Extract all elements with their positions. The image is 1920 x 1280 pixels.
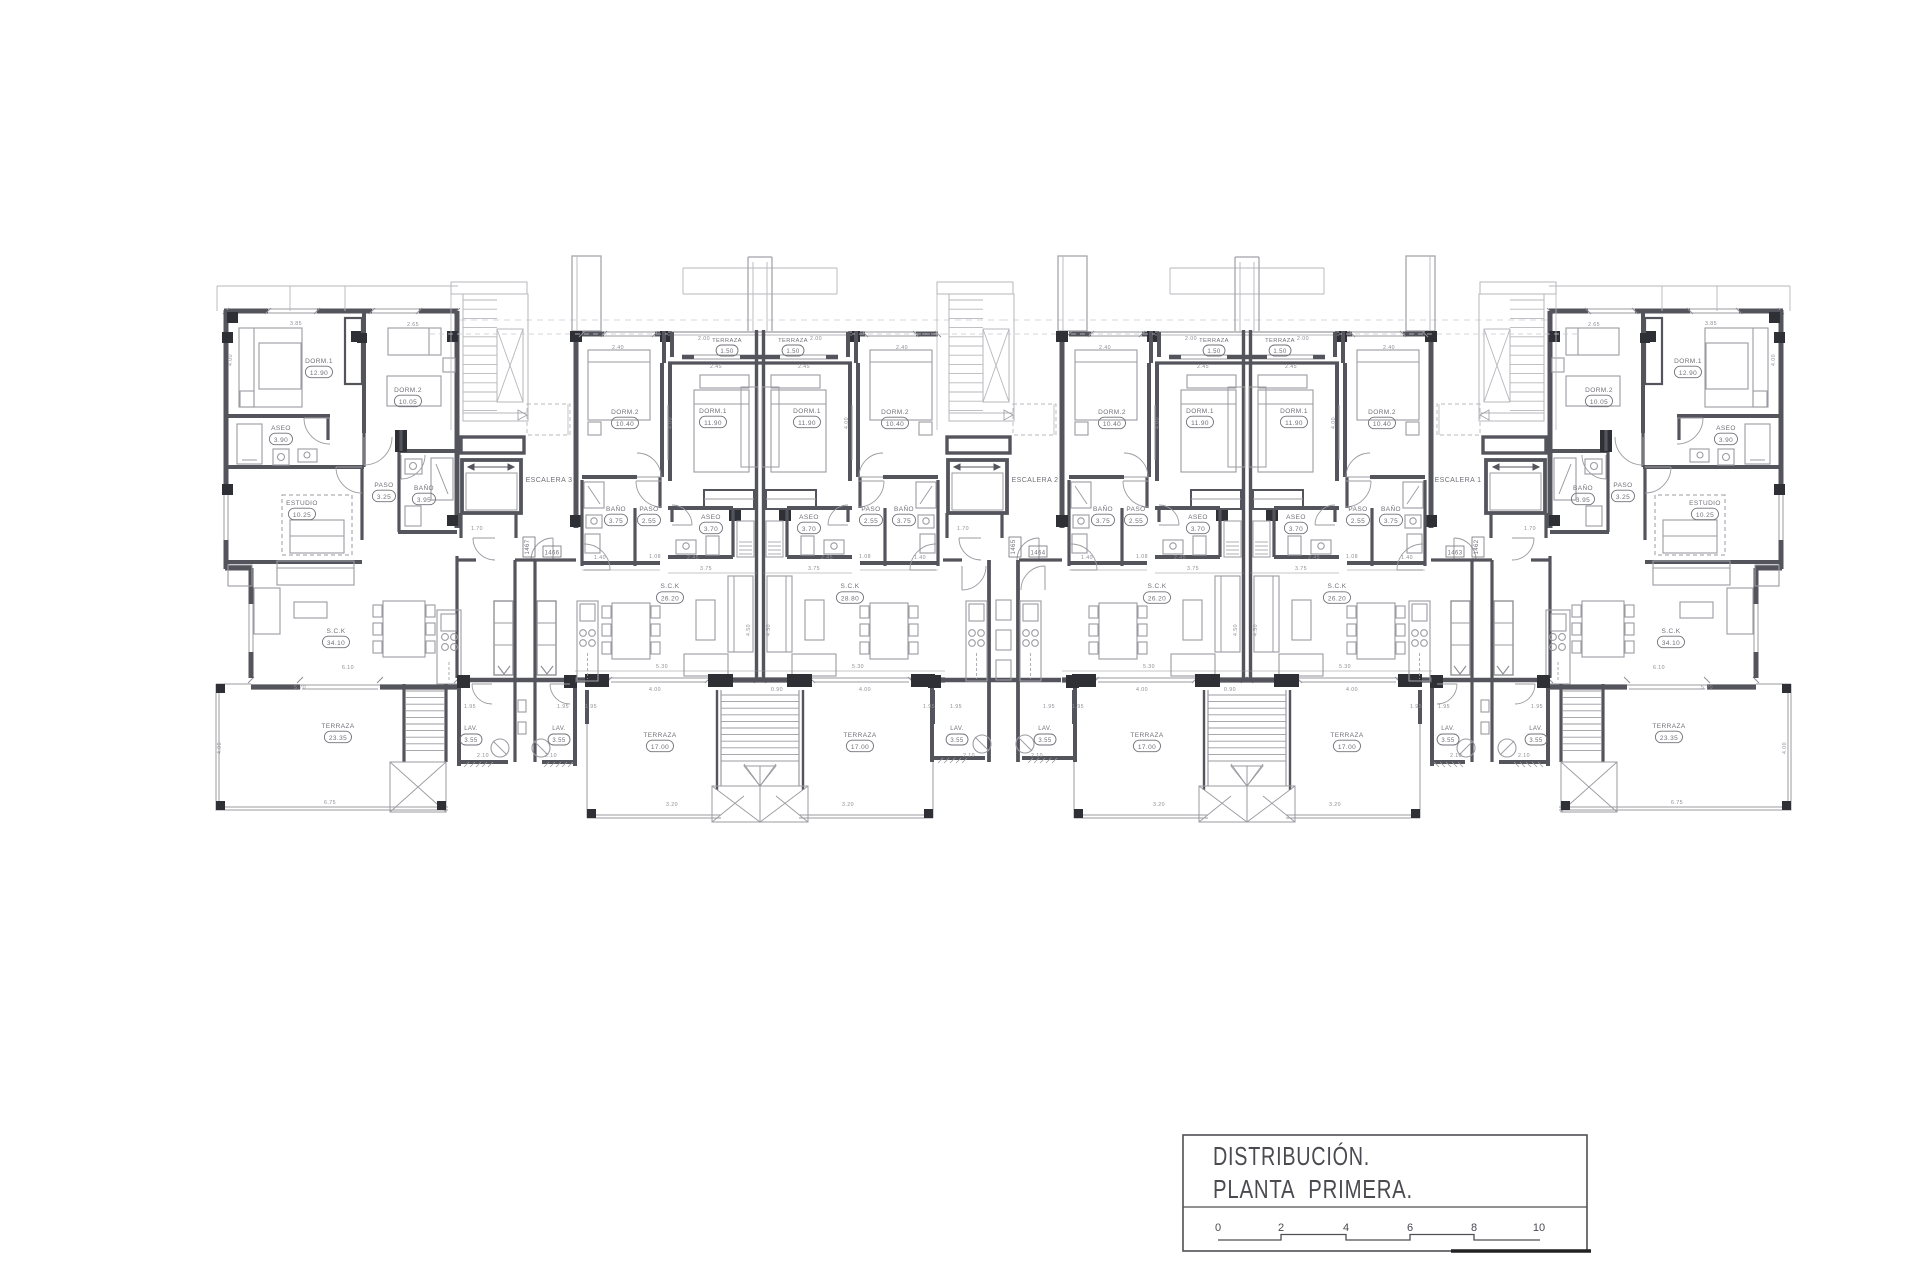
svg-text:3.20: 3.20 [666, 802, 678, 808]
svg-text:DORM.1: DORM.1 [1186, 408, 1214, 415]
svg-text:3.20: 3.20 [842, 802, 854, 808]
svg-text:S.C.K: S.C.K [1148, 583, 1167, 590]
svg-text:LAV.: LAV. [950, 726, 964, 732]
svg-text:DORM.1: DORM.1 [1280, 408, 1308, 415]
svg-text:3.95: 3.95 [417, 497, 431, 504]
svg-text:DORM.2: DORM.2 [394, 387, 422, 394]
svg-text:TERRAZA: TERRAZA [712, 338, 742, 344]
svg-text:S.C.K: S.C.K [327, 628, 346, 635]
svg-text:10.05: 10.05 [1590, 399, 1608, 406]
svg-text:2.40: 2.40 [1099, 345, 1111, 351]
svg-text:3.75: 3.75 [1295, 566, 1307, 572]
svg-text:2.45: 2.45 [821, 555, 833, 561]
svg-text:TERRAZA: TERRAZA [1652, 723, 1685, 730]
svg-text:1.70: 1.70 [471, 526, 483, 532]
svg-text:ESTUDIO: ESTUDIO [1689, 500, 1721, 507]
svg-text:ESTUDIO: ESTUDIO [286, 500, 318, 507]
svg-text:2.10: 2.10 [545, 753, 557, 759]
svg-text:11.90: 11.90 [1285, 420, 1303, 427]
svg-text:LAV.: LAV. [464, 726, 478, 732]
svg-text:ESCALERA 1: ESCALERA 1 [1435, 477, 1482, 484]
svg-text:1463: 1463 [1448, 551, 1463, 557]
svg-text:BAÑO: BAÑO [894, 504, 914, 513]
svg-text:1.95: 1.95 [585, 704, 597, 710]
svg-text:3.55: 3.55 [1038, 738, 1052, 744]
svg-text:2.55: 2.55 [1129, 518, 1143, 525]
svg-text:1.08: 1.08 [1136, 554, 1148, 560]
svg-text:3.20: 3.20 [1329, 802, 1341, 808]
svg-text:2: 2 [1278, 1222, 1284, 1234]
svg-text:17.00: 17.00 [651, 744, 669, 751]
svg-text:ASEO: ASEO [271, 425, 291, 432]
svg-text:BAÑO: BAÑO [1381, 504, 1401, 513]
svg-text:PASO: PASO [374, 482, 393, 489]
svg-text:TERRAZA: TERRAZA [321, 723, 354, 730]
svg-text:2.00: 2.00 [810, 336, 822, 342]
svg-text:3.90: 3.90 [274, 437, 288, 444]
svg-text:4.00: 4.00 [1782, 742, 1788, 754]
svg-text:ASEO: ASEO [799, 514, 819, 521]
svg-text:10.40: 10.40 [1373, 421, 1391, 428]
svg-text:LAV.: LAV. [1529, 726, 1543, 732]
svg-text:26.20: 26.20 [661, 595, 679, 602]
svg-text:2.00: 2.00 [1185, 336, 1197, 342]
svg-text:1.95: 1.95 [464, 704, 476, 710]
svg-text:3.70: 3.70 [1289, 526, 1303, 533]
svg-text:3.75: 3.75 [700, 566, 712, 572]
svg-text:TERRAZA: TERRAZA [1130, 732, 1163, 739]
svg-text:1467: 1467 [525, 539, 531, 554]
svg-text:ESCALERA 2: ESCALERA 2 [1012, 477, 1059, 484]
svg-text:10.25: 10.25 [293, 512, 311, 519]
svg-text:6.10: 6.10 [342, 665, 354, 671]
svg-text:26.20: 26.20 [1148, 595, 1166, 602]
svg-text:4.50: 4.50 [1253, 624, 1259, 636]
svg-text:2.10: 2.10 [1518, 753, 1530, 759]
svg-text:TERRAZA: TERRAZA [843, 732, 876, 739]
svg-text:2.10: 2.10 [1031, 753, 1043, 759]
svg-text:3.75: 3.75 [1096, 518, 1110, 525]
svg-text:2.45: 2.45 [1174, 555, 1186, 561]
svg-text:2.55: 2.55 [864, 518, 878, 525]
svg-text:11.90: 11.90 [704, 420, 722, 427]
svg-text:3.70: 3.70 [802, 526, 816, 533]
svg-text:0.90: 0.90 [1224, 687, 1236, 693]
svg-text:3.55: 3.55 [464, 738, 478, 744]
svg-text:ASEO: ASEO [1188, 514, 1208, 521]
svg-text:2.55: 2.55 [642, 518, 656, 525]
svg-text:0: 0 [1215, 1222, 1221, 1234]
svg-text:DORM.1: DORM.1 [305, 358, 333, 365]
svg-text:1.08: 1.08 [1346, 554, 1358, 560]
svg-text:26.20: 26.20 [1328, 595, 1346, 602]
svg-text:DISTRIBUCIÓN.: DISTRIBUCIÓN. [1213, 1141, 1370, 1171]
svg-text:10.40: 10.40 [1103, 421, 1121, 428]
svg-text:3.55: 3.55 [1441, 738, 1455, 744]
svg-text:S.C.K: S.C.K [661, 583, 680, 590]
svg-text:1.50: 1.50 [786, 349, 800, 355]
svg-text:4: 4 [1343, 1222, 1349, 1234]
svg-text:1462: 1462 [1474, 539, 1480, 554]
svg-text:4.00: 4.00 [668, 417, 674, 429]
svg-text:3.55: 3.55 [1529, 738, 1543, 744]
svg-text:2.00: 2.00 [1297, 336, 1309, 342]
svg-text:3.85: 3.85 [1705, 321, 1717, 327]
svg-text:1.95: 1.95 [1043, 704, 1055, 710]
svg-text:6.75: 6.75 [1671, 800, 1683, 806]
svg-text:11.90: 11.90 [798, 420, 816, 427]
svg-text:4.50: 4.50 [766, 624, 772, 636]
svg-text:PASO: PASO [1348, 506, 1367, 513]
svg-text:4.00: 4.00 [1771, 354, 1777, 366]
svg-text:0.90: 0.90 [771, 687, 783, 693]
svg-text:3.25: 3.25 [377, 494, 391, 501]
svg-text:1.40: 1.40 [914, 555, 926, 561]
svg-text:ASEO: ASEO [701, 514, 721, 521]
svg-text:BAÑO: BAÑO [1573, 483, 1593, 492]
svg-text:LAV.: LAV. [1441, 726, 1455, 732]
svg-text:LAV.: LAV. [1038, 726, 1052, 732]
svg-text:2.45: 2.45 [1285, 364, 1297, 370]
svg-text:PLANTA PRIMERA.: PLANTA PRIMERA. [1213, 1174, 1413, 1204]
svg-text:3.55: 3.55 [950, 738, 964, 744]
svg-text:17.00: 17.00 [851, 744, 869, 751]
svg-text:10.25: 10.25 [1696, 512, 1714, 519]
svg-text:28.80: 28.80 [841, 595, 859, 602]
svg-text:23.35: 23.35 [1660, 735, 1678, 742]
svg-text:10.40: 10.40 [616, 421, 634, 428]
svg-text:3.75: 3.75 [609, 518, 623, 525]
svg-text:1.70: 1.70 [1524, 526, 1536, 532]
svg-text:PASO: PASO [639, 506, 658, 513]
svg-text:3.75: 3.75 [1384, 518, 1398, 525]
svg-text:3.55: 3.55 [552, 738, 566, 744]
svg-text:S.C.K: S.C.K [841, 583, 860, 590]
svg-text:4.00: 4.00 [1136, 687, 1148, 693]
svg-text:2.00: 2.00 [698, 336, 710, 342]
svg-text:4.00: 4.00 [649, 687, 661, 693]
svg-text:1.50: 1.50 [1207, 349, 1221, 355]
svg-text:S.C.K: S.C.K [1328, 583, 1347, 590]
svg-text:6: 6 [1407, 1222, 1413, 1234]
svg-text:17.00: 17.00 [1138, 744, 1156, 751]
svg-text:1.95: 1.95 [557, 704, 569, 710]
svg-text:23.35: 23.35 [329, 735, 347, 742]
svg-text:1.95: 1.95 [1531, 704, 1543, 710]
svg-text:BAÑO: BAÑO [414, 483, 434, 492]
svg-text:ASEO: ASEO [1716, 425, 1736, 432]
svg-text:PASO: PASO [861, 506, 880, 513]
svg-text:DORM.2: DORM.2 [1368, 409, 1396, 416]
svg-text:1.40: 1.40 [1401, 555, 1413, 561]
svg-text:ESCALERA 3: ESCALERA 3 [526, 477, 573, 484]
svg-text:TERRAZA: TERRAZA [1330, 732, 1363, 739]
svg-text:10: 10 [1533, 1222, 1545, 1234]
svg-text:3.90: 3.90 [1719, 437, 1733, 444]
svg-text:10.40: 10.40 [886, 421, 904, 428]
svg-text:1.08: 1.08 [859, 554, 871, 560]
svg-text:1.40: 1.40 [594, 555, 606, 561]
svg-text:1.70: 1.70 [957, 526, 969, 532]
svg-text:1.50: 1.50 [1273, 349, 1287, 355]
svg-text:5.70: 5.70 [294, 685, 306, 691]
svg-text:4.00: 4.00 [217, 742, 223, 754]
svg-text:1.95: 1.95 [1072, 704, 1084, 710]
svg-text:4.00: 4.00 [228, 354, 234, 366]
svg-text:8: 8 [1471, 1222, 1477, 1234]
svg-text:1464: 1464 [1031, 551, 1046, 557]
svg-text:12.90: 12.90 [1679, 370, 1697, 377]
svg-text:LAV.: LAV. [552, 726, 566, 732]
svg-text:4.00: 4.00 [844, 417, 850, 429]
svg-text:12.90: 12.90 [310, 370, 328, 377]
svg-text:3.25: 3.25 [1616, 494, 1630, 501]
svg-text:5.30: 5.30 [1143, 664, 1155, 670]
svg-text:2.40: 2.40 [612, 345, 624, 351]
svg-text:DORM.2: DORM.2 [611, 409, 639, 416]
svg-text:3.75: 3.75 [1187, 566, 1199, 572]
svg-text:1465: 1465 [1011, 539, 1017, 554]
svg-text:3.75: 3.75 [808, 566, 820, 572]
svg-text:ASEO: ASEO [1286, 514, 1306, 521]
svg-text:34.10: 34.10 [327, 640, 345, 647]
svg-text:1.95: 1.95 [1410, 704, 1422, 710]
svg-text:BAÑO: BAÑO [1093, 504, 1113, 513]
svg-text:6.10: 6.10 [1653, 665, 1665, 671]
svg-text:DORM.2: DORM.2 [1585, 387, 1613, 394]
svg-text:4.00: 4.00 [1331, 417, 1337, 429]
svg-text:4.50: 4.50 [1233, 624, 1239, 636]
svg-text:5.30: 5.30 [656, 664, 668, 670]
svg-text:1.95: 1.95 [950, 704, 962, 710]
svg-text:2.65: 2.65 [1588, 322, 1600, 328]
svg-text:2.45: 2.45 [1308, 555, 1320, 561]
svg-text:4.00: 4.00 [1346, 687, 1358, 693]
svg-text:1466: 1466 [545, 551, 560, 557]
svg-text:2.10: 2.10 [1450, 753, 1462, 759]
svg-text:2.40: 2.40 [896, 345, 908, 351]
svg-text:TERRAZA: TERRAZA [1265, 338, 1295, 344]
svg-text:3.75: 3.75 [897, 518, 911, 525]
svg-text:3.95: 3.95 [1576, 497, 1590, 504]
svg-text:2.10: 2.10 [963, 753, 975, 759]
svg-text:4.00: 4.00 [859, 687, 871, 693]
svg-text:2.40: 2.40 [1383, 345, 1395, 351]
svg-text:S.C.K: S.C.K [1662, 628, 1681, 635]
svg-text:DORM.2: DORM.2 [1098, 409, 1126, 416]
svg-text:TERRAZA: TERRAZA [643, 732, 676, 739]
svg-text:1.95: 1.95 [923, 704, 935, 710]
svg-text:2.55: 2.55 [1351, 518, 1365, 525]
svg-text:10.05: 10.05 [399, 399, 417, 406]
svg-text:2.10: 2.10 [477, 753, 489, 759]
svg-text:34.10: 34.10 [1662, 640, 1680, 647]
svg-text:1.40: 1.40 [1081, 555, 1093, 561]
svg-text:2.65: 2.65 [407, 322, 419, 328]
svg-text:TERRAZA: TERRAZA [1199, 338, 1229, 344]
svg-text:DORM.1: DORM.1 [699, 408, 727, 415]
svg-text:TERRAZA: TERRAZA [778, 338, 808, 344]
svg-text:PASO: PASO [1126, 506, 1145, 513]
svg-text:6.75: 6.75 [324, 800, 336, 806]
svg-text:1.50: 1.50 [720, 349, 734, 355]
svg-text:4.50: 4.50 [746, 624, 752, 636]
svg-text:3.20: 3.20 [1153, 802, 1165, 808]
svg-text:1.95: 1.95 [1438, 704, 1450, 710]
svg-text:2.45: 2.45 [798, 364, 810, 370]
svg-text:BAÑO: BAÑO [606, 504, 626, 513]
svg-text:3.70: 3.70 [704, 526, 718, 533]
svg-text:11.90: 11.90 [1191, 420, 1209, 427]
svg-text:DORM.2: DORM.2 [881, 409, 909, 416]
svg-text:2.45: 2.45 [687, 555, 699, 561]
svg-text:3.70: 3.70 [1191, 526, 1205, 533]
svg-text:5.30: 5.30 [1339, 664, 1351, 670]
svg-text:1.08: 1.08 [649, 554, 661, 560]
svg-text:3.85: 3.85 [290, 321, 302, 327]
svg-text:4.00: 4.00 [1155, 417, 1161, 429]
svg-text:PASO: PASO [1613, 482, 1632, 489]
svg-text:2.45: 2.45 [1197, 364, 1209, 370]
svg-text:5.30: 5.30 [852, 664, 864, 670]
svg-text:2.45: 2.45 [710, 364, 722, 370]
svg-text:5.70: 5.70 [1701, 685, 1713, 691]
svg-text:DORM.1: DORM.1 [793, 408, 821, 415]
svg-text:DORM.1: DORM.1 [1674, 358, 1702, 365]
svg-text:17.00: 17.00 [1338, 744, 1356, 751]
